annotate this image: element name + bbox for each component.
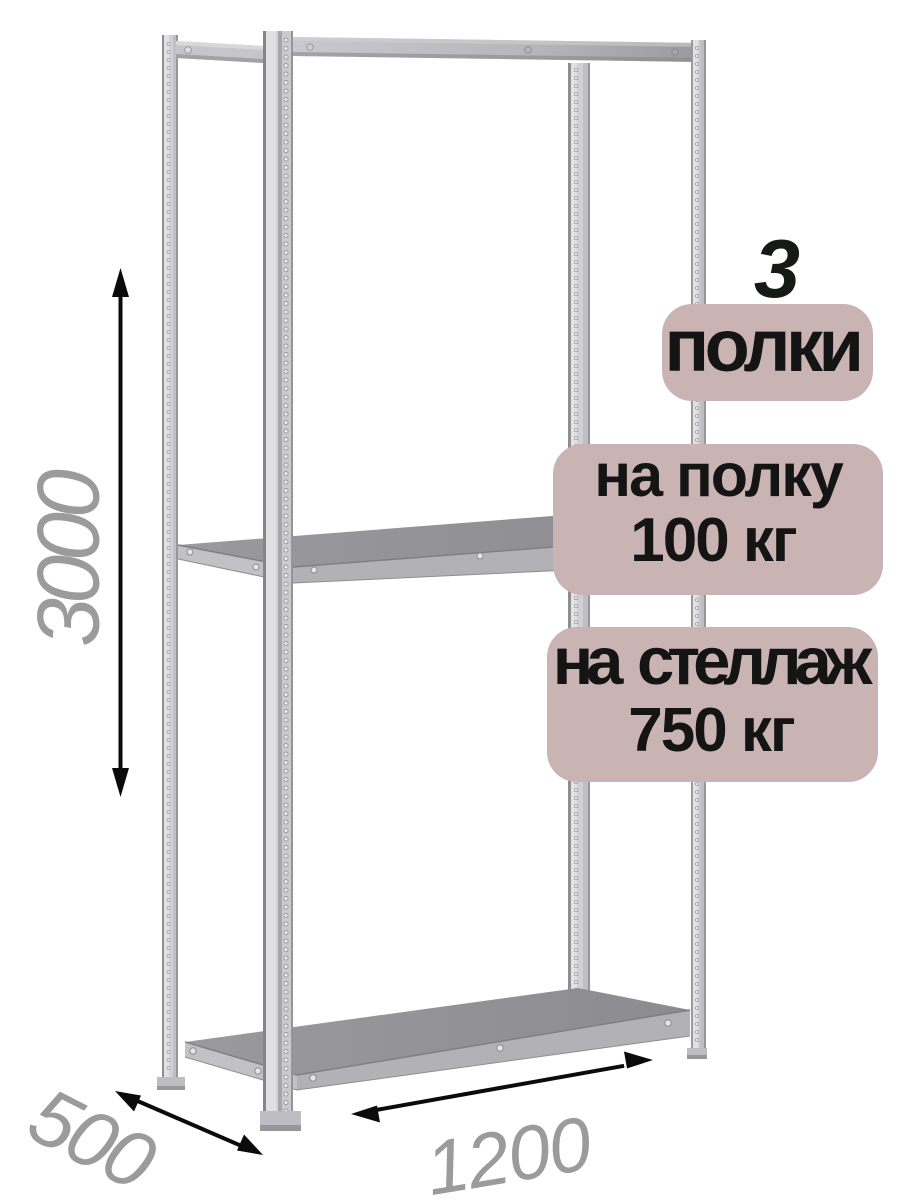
svg-text:на полку: на полку [594,441,844,509]
svg-text:3: 3 [754,222,800,315]
svg-text:полки: полки [664,304,859,387]
svg-text:на стеллаж: на стеллаж [553,624,874,699]
svg-text:100 кг: 100 кг [630,506,797,575]
svg-text:3000: 3000 [18,469,117,647]
svg-text:750 кг: 750 кг [628,696,795,765]
